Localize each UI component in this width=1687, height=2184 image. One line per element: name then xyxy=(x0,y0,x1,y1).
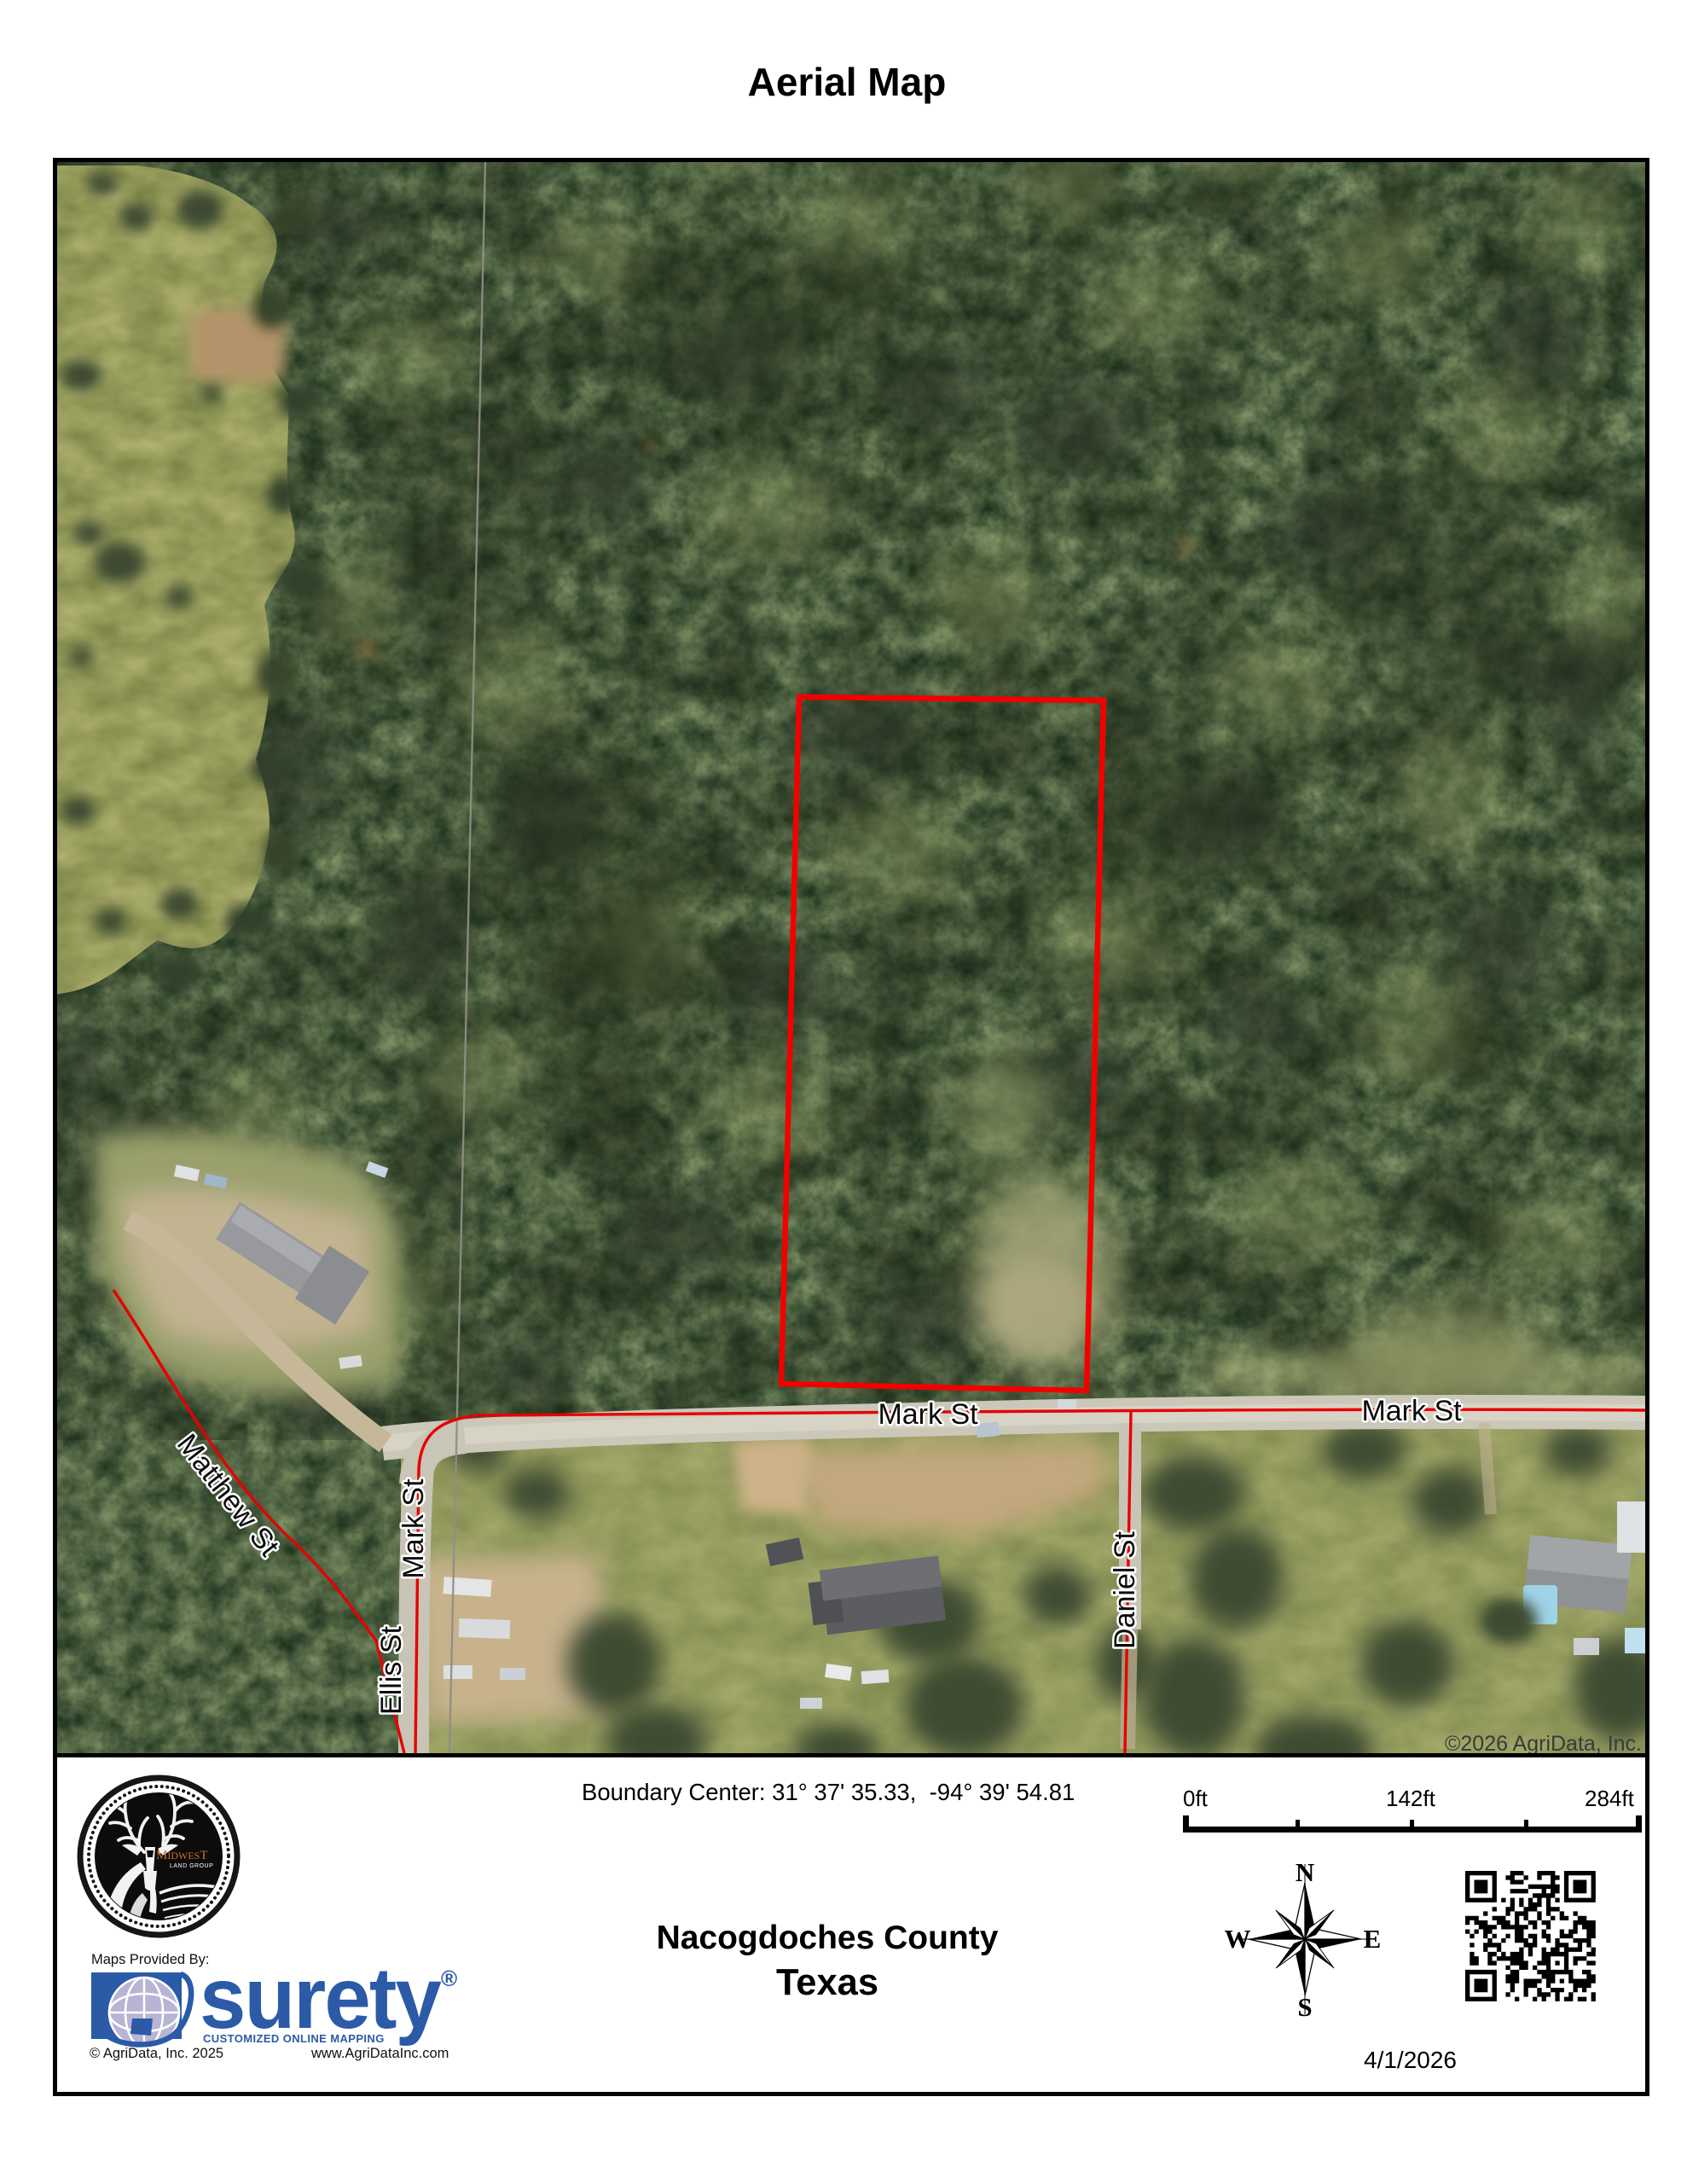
svg-text:S: S xyxy=(1297,1992,1312,2020)
svg-text:E: E xyxy=(1364,1924,1382,1954)
svg-text:MIDWEST: MIDWEST xyxy=(156,1849,208,1862)
svg-text:N: N xyxy=(1296,1858,1314,1887)
svg-text:©2026 AgriData, Inc.: ©2026 AgriData, Inc. xyxy=(1445,1732,1642,1753)
svg-text:Mark St: Mark St xyxy=(397,1478,430,1579)
svg-text:CUSTOMIZED ONLINE MAPPING: CUSTOMIZED ONLINE MAPPING xyxy=(203,2032,385,2045)
svg-text:Ellis St: Ellis St xyxy=(375,1625,408,1714)
svg-text:Daniel St: Daniel St xyxy=(1109,1531,1141,1649)
svg-text:LAND GROUP: LAND GROUP xyxy=(170,1863,213,1869)
svg-text:Mark St: Mark St xyxy=(1361,1395,1462,1427)
svg-text:®: ® xyxy=(441,1968,457,1991)
svg-text:W: W xyxy=(1225,1924,1251,1954)
svg-text:Mark St: Mark St xyxy=(878,1398,978,1431)
